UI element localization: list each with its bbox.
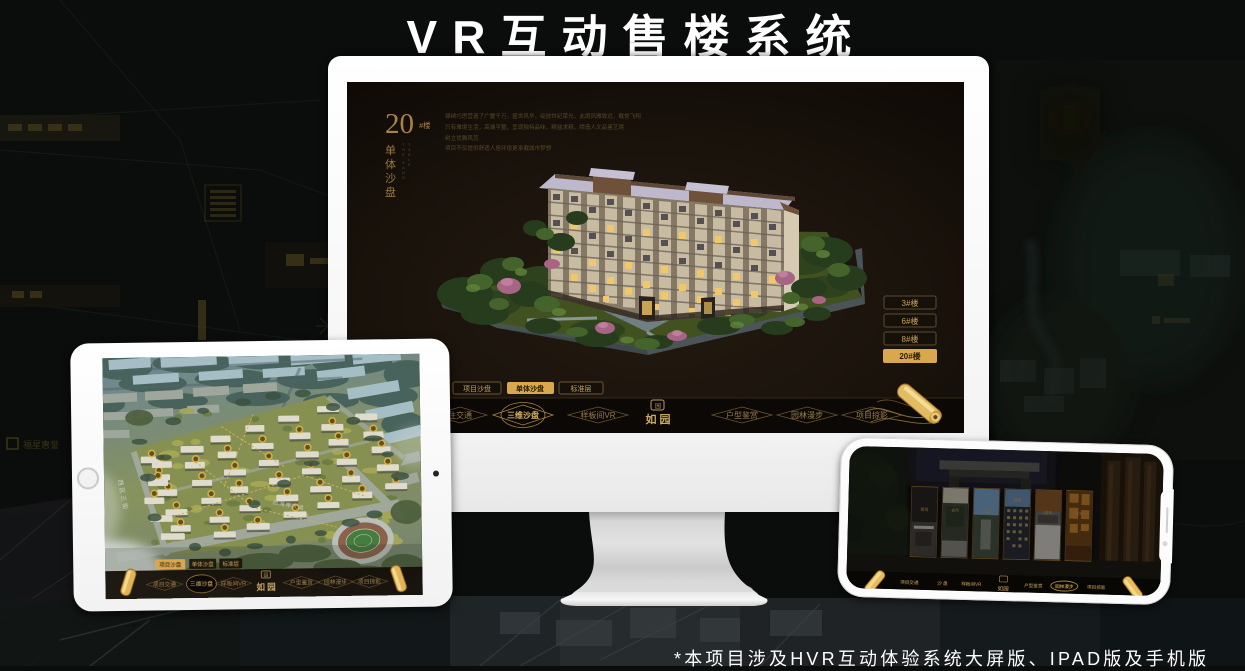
svg-text:园林漫步: 园林漫步	[791, 410, 823, 420]
svg-text:项目沙盘: 项目沙盘	[463, 384, 491, 393]
svg-text:沙: 沙	[385, 172, 396, 185]
svg-text:只有雅境生活，高端平整，呈现独特品味，精益求精，缔造人文品鉴: 只有雅境生活，高端平整，呈现独特品味，精益求精，缔造人文品鉴艺境	[445, 123, 624, 131]
svg-text:锦绣巧思营造了广厦千万，盛世风华，绽放世纪荣光，此境风雅致远: 锦绣巧思营造了广厦千万，盛世风华，绽放世纪荣光，此境风雅致远，载誉飞翔	[445, 112, 641, 120]
svg-text:单体沙盘: 单体沙盘	[516, 384, 544, 393]
svg-text:20#楼: 20#楼	[899, 351, 920, 361]
svg-text:树立优雅风范: 树立优雅风范	[445, 134, 479, 142]
svg-text:园: 园	[655, 403, 661, 410]
svg-text:#楼: #楼	[419, 120, 431, 130]
svg-text:E: E	[408, 162, 411, 167]
svg-text:标准层: 标准层	[571, 384, 592, 393]
svg-text:标准层: 标准层	[222, 560, 239, 568]
svg-text:项目不仅提供舒适人居环境更承载城市梦想: 项目不仅提供舒适人居环境更承载城市梦想	[445, 144, 552, 152]
svg-text:6#楼: 6#楼	[902, 316, 919, 326]
svg-text:20: 20	[385, 108, 414, 140]
svg-text:8#楼: 8#楼	[902, 334, 919, 344]
svg-text:D: D	[402, 175, 405, 180]
svg-text:如 园: 如 园	[645, 412, 670, 426]
svg-text:样板间VR: 样板间VR	[580, 410, 615, 420]
svg-text:沙 盘: 沙 盘	[937, 580, 948, 586]
svg-text:盘: 盘	[385, 185, 396, 199]
svg-text:单: 单	[385, 144, 396, 157]
svg-text:3#楼: 3#楼	[902, 298, 919, 308]
svg-text:E: E	[402, 152, 405, 157]
svg-text:如 园: 如 园	[256, 582, 276, 592]
svg-text:三维沙盘: 三维沙盘	[507, 410, 539, 420]
svg-text:体: 体	[385, 157, 396, 171]
svg-text:福星惠誉: 福星惠誉	[23, 439, 59, 450]
svg-text:户型鉴赏: 户型鉴赏	[726, 410, 758, 420]
svg-text:住交通: 住交通	[448, 410, 472, 420]
